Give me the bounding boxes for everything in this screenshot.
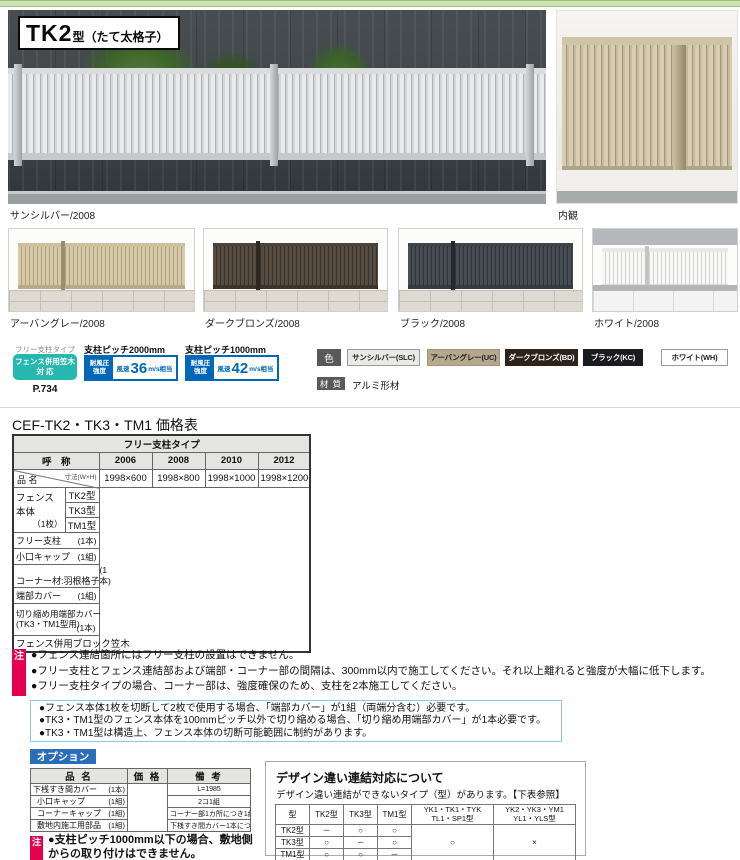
- model-type-cell: TM1型: [65, 517, 99, 532]
- design-cell: －: [310, 825, 344, 837]
- fence-post-graphic: [673, 45, 686, 189]
- variant-photo-dark-bronze: [203, 228, 388, 312]
- option-remark: 下桟すき間カバー1本につき1組必要: [168, 820, 251, 832]
- fence-graphic: [213, 243, 378, 289]
- options-header-remark: 備 考: [168, 769, 251, 784]
- design-merged-ng: ×: [494, 825, 576, 860]
- design-col-group2: YK2・YK3・YM1 YL1・YLS型: [494, 805, 576, 825]
- option-badge: オプション: [30, 749, 96, 764]
- wind-suffix: m/s相当: [148, 363, 172, 373]
- model-type-cell: TK3型: [65, 502, 99, 517]
- options-header-price: 価 格: [128, 769, 168, 784]
- note-item: ●フリー支柱タイプの場合、コーナー部は、強度確保のため、支柱を2本施工してくださ…: [31, 679, 736, 695]
- design-cell: ○: [310, 849, 344, 860]
- dimension-cell: 1998×1200: [258, 469, 310, 487]
- option-name: 敷地内施工用部品: [37, 820, 101, 831]
- option-name: 小口キャップ: [37, 796, 85, 807]
- block-wall-graphic: [593, 291, 737, 311]
- fence-body-label: フェンス本体: [16, 490, 63, 518]
- variant-caption: アーバングレー/2008: [10, 315, 105, 330]
- section-divider: [0, 407, 740, 408]
- primary-notes: ●フェンス連結箇所にはフリー支柱の設置はできません。 ●フリー支柱とフェンス連結…: [31, 648, 736, 695]
- size-col-header: 2006: [99, 452, 152, 469]
- material-label-chip: 材 質: [317, 377, 345, 390]
- strength-line2: 強度: [93, 368, 106, 376]
- block-wall-graphic: [399, 290, 582, 311]
- wind-strength-label: 耐風圧 強度: [86, 357, 113, 379]
- item-unit: (1本): [100, 565, 111, 587]
- fence-body-unit: （1枚）: [32, 518, 62, 530]
- strength-line1: 耐風圧: [90, 360, 110, 368]
- fence-graphic: [602, 248, 728, 288]
- fence-graphic: [408, 243, 573, 289]
- color-swatch-urban-grey: アーバングレー(UC): [427, 349, 500, 366]
- item-unit: (1本): [77, 622, 96, 634]
- design-cell: ○: [378, 837, 412, 849]
- price-table: フリー支柱タイプ 呼 称 2006 2008 2010 2012 寸法(W×H)…: [12, 434, 311, 653]
- item-name: 切り縮め用端部カバー: [16, 609, 97, 620]
- secondary-notes-box: ●フェンス本体1枚を切断して2枚で使用する場合、「端部カバー」が1組（両端分含む…: [30, 700, 562, 742]
- item-name: コーナー材:羽根格子: [16, 574, 100, 587]
- option-remark: L=1985: [168, 784, 251, 796]
- item-name: 小口キャップ: [16, 550, 70, 563]
- size-col-header: 2010: [205, 452, 258, 469]
- option-unit: (1本): [108, 784, 125, 795]
- variant-caption: ブラック/2008: [400, 315, 465, 330]
- name-header: 呼 称: [13, 452, 99, 469]
- note-item: ●TK3・TM1型は構造上、フェンス本体の切断可能範囲に制約があります。: [39, 728, 553, 740]
- ground-graphic: [557, 191, 737, 203]
- fence-post-graphic: [270, 64, 278, 166]
- price-table-header: フリー支柱タイプ: [13, 435, 310, 452]
- ground-graphic: [8, 191, 546, 204]
- item-name: フリー支柱: [16, 534, 61, 547]
- size-label: 寸法(W×H): [65, 471, 97, 481]
- design-cell: ○: [344, 825, 378, 837]
- material-value: アルミ形材: [352, 378, 399, 392]
- dimension-cell: 1998×800: [152, 469, 205, 487]
- fence-graphic: [18, 243, 185, 289]
- product-title: TK2 型（たて太格子）: [18, 16, 180, 50]
- fence-graphic: [562, 37, 732, 171]
- inner-photo-caption: 内観: [558, 207, 578, 222]
- option-name: コーナーキャップ: [37, 808, 101, 819]
- wind-value: 42: [232, 360, 249, 377]
- catalog-page: TK2 型（たて太格子） サンシルバー/2008 内観 アーバングレー/2008…: [0, 0, 740, 860]
- color-label-chip: 色: [317, 349, 341, 366]
- option-remark: 2コ1組: [168, 796, 251, 808]
- item-unit: (1本): [78, 535, 97, 547]
- option-row: 小口キャップ(1組): [31, 796, 128, 808]
- option-row: コーナーキャップ(1組): [31, 808, 128, 820]
- color-swatch-dark-bronze: ダークブロンズ(BD): [505, 349, 578, 366]
- options-header-name: 品 名: [31, 769, 128, 784]
- option-unit: (1組): [108, 820, 125, 831]
- price-area-empty: [99, 487, 310, 652]
- note-badge: 注: [30, 836, 43, 860]
- size-col-header: 2012: [258, 452, 310, 469]
- design-link-title: デザイン違い連結対応について: [276, 769, 575, 786]
- option-price-empty: [128, 784, 168, 832]
- strength-line2: 強度: [194, 368, 207, 376]
- design-col-type: 型: [276, 805, 310, 825]
- item-row: 端部カバー(1組): [13, 587, 99, 603]
- page-reference: P.734: [13, 384, 77, 395]
- note-item: ●フリー支柱とフェンス連結部および端部・コーナー部の間隔は、300mm以内で施工…: [31, 664, 736, 680]
- fence-body-cell: フェンス本体 （1枚）: [13, 487, 65, 532]
- options-note: ●支柱ピッチ1000mm以下の場合、敷地側からの取り付けはできません。: [48, 834, 260, 860]
- group1-line2: TL1・SP1型: [412, 815, 493, 824]
- wind-resistance-badge: 耐風圧 強度 風速 36 m/s相当: [84, 355, 178, 381]
- design-col-group1: YK1・TK1・TYK TL1・SP1型: [412, 805, 494, 825]
- color-swatch-black: ブラック(KC): [583, 349, 643, 366]
- item-unit: (1組): [78, 590, 97, 602]
- wind-strength-label: 耐風圧 強度: [187, 357, 214, 379]
- variant-photo-white: [592, 228, 738, 312]
- variant-photo-black: [398, 228, 583, 312]
- wind-value: 36: [131, 360, 148, 377]
- variant-caption: ホワイト/2008: [594, 315, 659, 330]
- fence-post-graphic: [526, 64, 534, 166]
- dimension-cell: 1998×600: [99, 469, 152, 487]
- design-cell: －: [344, 837, 378, 849]
- design-link-subtitle: デザイン違い連結ができないタイプ（型）があります。【下表参照】: [276, 787, 575, 801]
- option-name: 下桟すき間カバー: [33, 784, 97, 795]
- wind-resistance-badge: 耐風圧 強度 風速 42 m/s相当: [185, 355, 279, 381]
- item-label: 品 名: [17, 473, 38, 486]
- block-wall-graphic: [9, 290, 194, 311]
- variant-photo-urban-grey: [8, 228, 195, 312]
- model-type-cell: TK2型: [65, 487, 99, 502]
- design-col: TK2型: [310, 805, 344, 825]
- wind-speed-value: 風速 36 m/s相当: [113, 357, 176, 379]
- wind-prefix: 風速: [117, 363, 130, 373]
- color-swatch-sun-silver: サンシルバー(SLC): [347, 349, 420, 366]
- item-row: コーナー材:羽根格子(1本): [13, 564, 99, 587]
- block-wall-graphic: [204, 290, 387, 311]
- kasagi-support-badge: フェンス併用笠木 対 応: [13, 354, 77, 380]
- main-fence-photo: TK2 型（たて太格子）: [8, 10, 546, 204]
- kasagi-badge-line2: 対 応: [36, 367, 53, 377]
- fence-post-graphic: [14, 64, 22, 166]
- color-swatch-white: ホワイト(WH): [661, 349, 728, 366]
- item-row: フリー支柱(1本): [13, 532, 99, 548]
- design-col: TK3型: [344, 805, 378, 825]
- option-row: 下桟すき間カバー(1本): [31, 784, 128, 796]
- design-merged-ok: ○: [412, 825, 494, 860]
- design-row-label: TM1型: [276, 849, 310, 860]
- size-col-header: 2008: [152, 452, 205, 469]
- design-cell: ○: [310, 837, 344, 849]
- item-name: 端部カバー: [16, 589, 61, 602]
- dimension-cell: 1998×1000: [205, 469, 258, 487]
- wind-prefix: 風速: [218, 363, 231, 373]
- design-row-label: TK3型: [276, 837, 310, 849]
- note-item: ●TK3・TM1型のフェンス本体を100mmピッチ以外で切り縮める場合、「切り縮…: [39, 715, 553, 727]
- inner-view-photo: [556, 10, 738, 204]
- variant-caption: ダークブロンズ/2008: [205, 315, 300, 330]
- design-link-table: 型 TK2型 TK3型 TM1型 YK1・TK1・TYK TL1・SP1型 YK…: [275, 804, 576, 860]
- note-item: ●フェンス連結箇所にはフリー支柱の設置はできません。: [31, 648, 736, 664]
- group2-line2: YL1・YLS型: [494, 815, 575, 824]
- kasagi-badge-line1: フェンス併用笠木: [15, 357, 75, 367]
- trim-end-cover-row: 切り縮め用端部カバー (TK3・TM1型用) (1本): [13, 603, 99, 635]
- design-cell: －: [378, 849, 412, 860]
- strength-line1: 耐風圧: [191, 360, 211, 368]
- option-unit: (1組): [108, 808, 125, 819]
- wind-suffix: m/s相当: [249, 363, 273, 373]
- sky-band-graphic: [593, 229, 737, 245]
- option-row: 敷地内施工用部品(1組): [31, 820, 128, 832]
- options-table: 品 名 価 格 備 考 下桟すき間カバー(1本) L=1985 小口キャップ(1…: [30, 768, 251, 832]
- option-unit: (1組): [108, 796, 125, 807]
- curb-graphic: [557, 170, 737, 191]
- design-col: TM1型: [378, 805, 412, 825]
- item-row: 小口キャップ(1組): [13, 548, 99, 564]
- design-cell: ○: [378, 825, 412, 837]
- product-model: TK2: [26, 20, 72, 47]
- option-remark: コーナー部1カ所につき1組必要: [168, 808, 251, 820]
- top-green-bar: [0, 0, 740, 7]
- price-table-title: CEF-TK2・TK3・TM1 価格表: [12, 415, 198, 435]
- item-unit: (1組): [78, 551, 97, 563]
- note-badge: 注: [12, 649, 26, 696]
- diagonal-header-cell: 寸法(W×H) 品 名: [13, 469, 99, 487]
- main-photo-caption: サンシルバー/2008: [10, 207, 95, 222]
- note-item: ●フェンス本体1枚を切断して2枚で使用する場合、「端部カバー」が1組（両端分含む…: [39, 703, 553, 715]
- design-cell: ○: [344, 849, 378, 860]
- design-row-label: TK2型: [276, 825, 310, 837]
- product-type-label: 型（たて太格子）: [72, 28, 168, 45]
- wind-speed-value: 風速 42 m/s相当: [214, 357, 277, 379]
- design-link-box: デザイン違い連結対応について デザイン違い連結ができないタイプ（型）があります。…: [265, 761, 586, 856]
